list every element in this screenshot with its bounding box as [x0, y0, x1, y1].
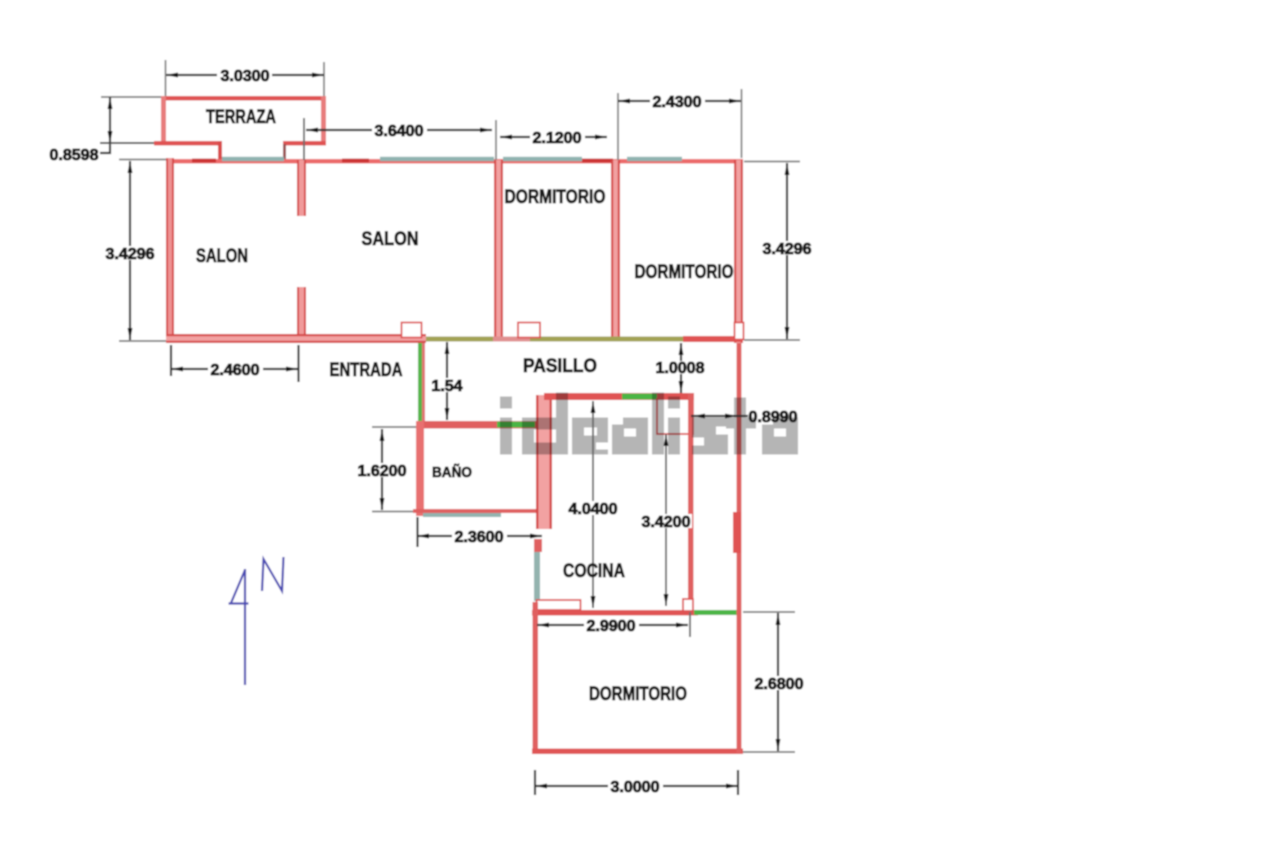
svg-text:DORMITORIO: DORMITORIO [505, 187, 606, 208]
svg-text:4.0400: 4.0400 [569, 501, 618, 518]
svg-text:1.54: 1.54 [431, 378, 462, 395]
svg-text:3.4296: 3.4296 [106, 246, 155, 263]
svg-text:2.1200: 2.1200 [533, 130, 582, 147]
svg-text:2.4600: 2.4600 [211, 362, 260, 379]
svg-text:2.4300: 2.4300 [653, 94, 702, 111]
svg-text:3.0300: 3.0300 [221, 68, 270, 85]
svg-text:DORMITORIO: DORMITORIO [635, 262, 734, 283]
svg-text:3.4200: 3.4200 [642, 514, 691, 531]
svg-text:PASILLO: PASILLO [523, 356, 597, 377]
svg-text:2.9900: 2.9900 [587, 618, 636, 635]
svg-text:SALON: SALON [362, 229, 419, 250]
svg-text:DORMITORIO: DORMITORIO [589, 684, 687, 705]
svg-text:BAÑO: BAÑO [432, 463, 472, 481]
svg-text:0.8598: 0.8598 [50, 147, 99, 164]
svg-text:1.6200: 1.6200 [358, 463, 407, 480]
svg-text:3.6400: 3.6400 [375, 123, 424, 140]
svg-text:COCINA: COCINA [563, 561, 625, 582]
svg-text:ENTRADA: ENTRADA [330, 360, 403, 381]
svg-text:0.8990: 0.8990 [749, 409, 798, 426]
svg-text:SALON: SALON [196, 246, 248, 267]
svg-text:3.0000: 3.0000 [611, 779, 660, 796]
svg-text:1.0008: 1.0008 [656, 360, 705, 377]
svg-text:2.3600: 2.3600 [455, 529, 504, 546]
svg-text:TERRAZA: TERRAZA [206, 107, 276, 128]
svg-text:3.4296: 3.4296 [763, 241, 812, 258]
svg-text:2.6800: 2.6800 [755, 676, 804, 693]
